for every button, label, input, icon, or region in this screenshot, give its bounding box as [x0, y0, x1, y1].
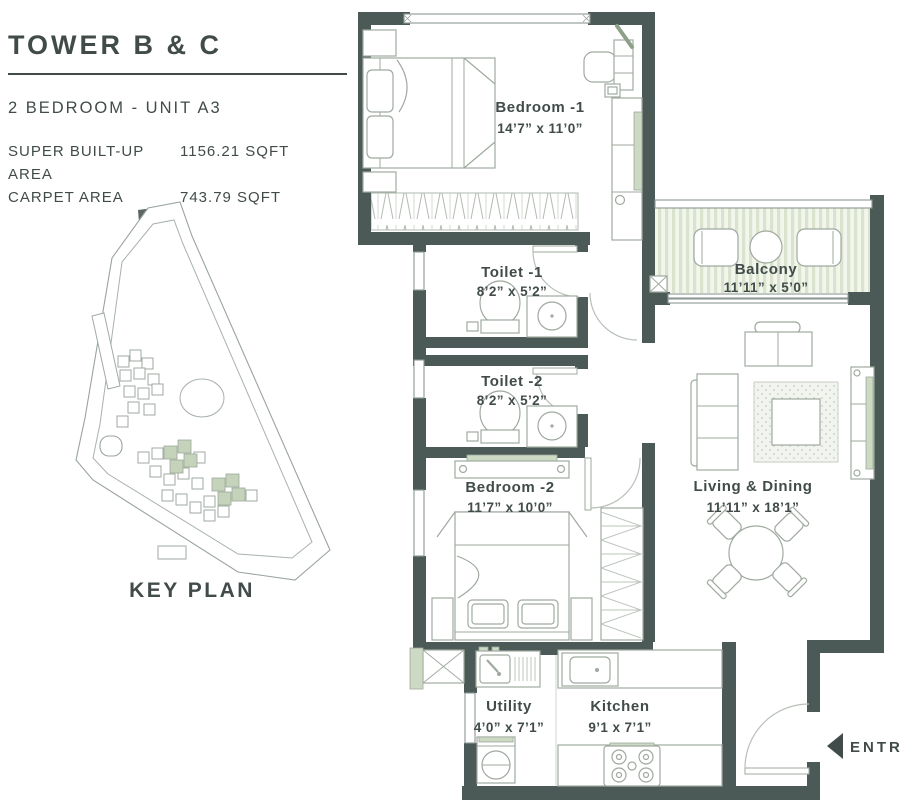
toilet-tank [481, 320, 519, 333]
highlighted-building [218, 492, 231, 505]
room-name-toilet-2: Toilet -2 [481, 373, 543, 390]
toilet2-window [414, 360, 424, 398]
nightstand [571, 598, 592, 640]
kitchen-fixtures [558, 650, 722, 786]
room-name-bedroom-1: Bedroom -1 [495, 99, 584, 116]
highlighted-building [184, 454, 197, 467]
room-dims-utility: 4’0” x 7’1” [474, 720, 544, 735]
room-name-bedroom-2: Bedroom -2 [465, 479, 554, 496]
sofa-3seat-icon [697, 374, 738, 470]
highlighted-building [226, 474, 239, 487]
tv-accent [866, 377, 873, 469]
site-boundary [76, 202, 330, 580]
floor-plan-drawing: KEY PLAN [0, 0, 900, 804]
key-plan-title: KEY PLAN [129, 579, 255, 602]
room-dims-balcony: 11’11” x 5’0” [724, 280, 809, 295]
room-dims-toilet-2: 8’2” x 5’2” [477, 393, 547, 408]
entry-door-arc [745, 704, 809, 768]
dresser-accent [467, 455, 557, 461]
nightstand [363, 30, 396, 56]
room-dims-bedroom-2: 11’7” x 10’0” [467, 500, 553, 515]
sofa-back [755, 322, 800, 333]
room-name-toilet-1: Toilet -1 [481, 264, 543, 281]
bedroom2-door-arc [591, 458, 640, 508]
living-furniture [691, 322, 874, 600]
pond [100, 436, 122, 456]
floor-plan-page: TOWER B & C 2 BEDROOM - UNIT A3 SUPER BU… [0, 0, 900, 804]
balcony-railing [655, 200, 872, 208]
dresser-icon [455, 461, 569, 478]
toilet-tank [481, 430, 519, 443]
entry-marker: ENTRY [827, 733, 900, 759]
toilet1-door [533, 246, 577, 252]
room-name-balcony: Balcony [735, 261, 798, 278]
room-dims-bedroom-1: 14’7” x 11’0” [497, 121, 583, 136]
room-name-utility: Utility [486, 698, 532, 715]
utility-window [465, 693, 475, 743]
highlighted-building [232, 488, 245, 501]
nightstand [432, 598, 453, 640]
room-name-kitchen: Kitchen [590, 698, 649, 715]
highlighted-building [178, 440, 191, 453]
bedroom2-window [414, 490, 424, 556]
room-name-living-dining: Living & Dining [694, 478, 813, 495]
balcony-sliding-door [668, 299, 848, 303]
bedroom1-window [404, 14, 590, 23]
entry-door [745, 768, 809, 774]
nightstand [363, 172, 396, 192]
flush-box [467, 322, 478, 331]
room-dims-kitchen: 9’1 x 7’1” [588, 720, 651, 735]
utility-fixtures [410, 647, 556, 786]
highlighted-building [212, 478, 225, 491]
building-block [158, 546, 186, 559]
highlighted-building [170, 460, 183, 473]
pillow [367, 70, 393, 112]
pillow [367, 116, 393, 158]
balcony-table [750, 231, 782, 263]
highlighted-building [164, 446, 177, 459]
room-dims-living-dining: 11’11” x 18’1” [707, 500, 800, 515]
bedroom1-rug [371, 193, 578, 230]
balcony-chair [694, 229, 738, 266]
entry-arrow-icon [827, 733, 843, 759]
entry-label: ENTRY [850, 739, 900, 756]
balcony-chair [797, 229, 841, 266]
passage-door-arc [590, 293, 637, 340]
flush-box [467, 432, 478, 441]
duct [410, 648, 423, 689]
faucet [595, 668, 599, 672]
chair-icon [584, 52, 616, 82]
toilet1-window [414, 252, 424, 290]
key-plan [76, 202, 330, 580]
wardrobe-accent [634, 112, 642, 190]
room-dims-toilet-1: 8’2” x 5’2” [477, 284, 547, 299]
coffee-table [772, 399, 820, 445]
bedroom2-door [585, 458, 591, 510]
